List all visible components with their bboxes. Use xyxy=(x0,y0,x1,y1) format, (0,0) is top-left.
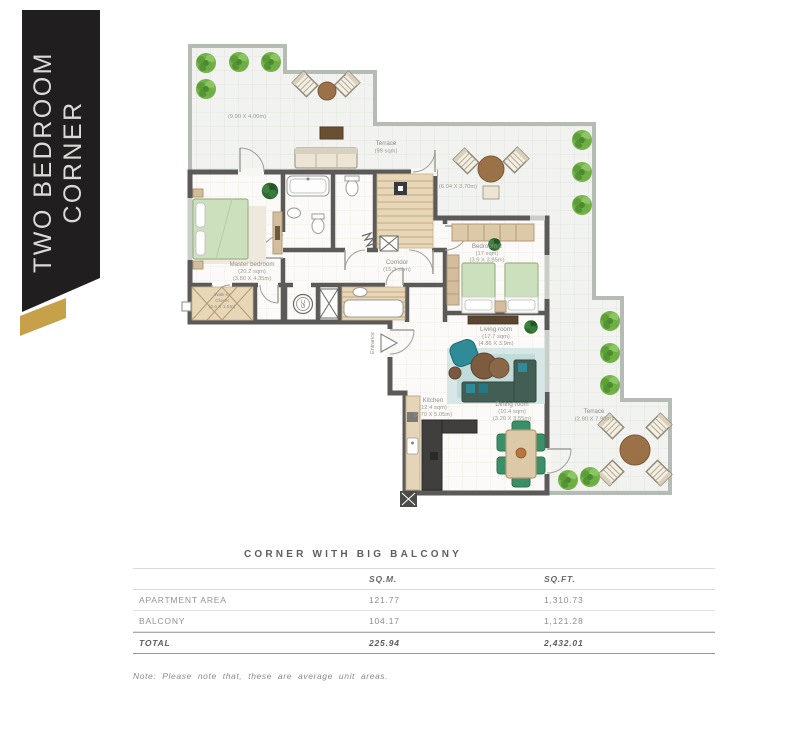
plant-icon xyxy=(524,320,538,334)
kitchen-label: Kitchen xyxy=(423,397,444,404)
gc-label: GC xyxy=(301,300,307,308)
plant-icon xyxy=(572,195,592,215)
header-sqft: SQ.FT. xyxy=(538,569,715,589)
sink xyxy=(288,208,301,218)
window xyxy=(188,198,193,260)
shelf xyxy=(447,255,459,305)
window xyxy=(530,216,545,221)
terrace-bottom-label: Terrace xyxy=(584,408,605,415)
shaft-room xyxy=(320,289,338,318)
dining-label: Dining room xyxy=(495,401,528,408)
master-bedroom-dim: (3.80 X 4.35m) xyxy=(233,276,271,282)
dresser-detail xyxy=(275,226,280,240)
total-sqft: 2,432.01 xyxy=(538,633,715,653)
coffee-table xyxy=(320,127,343,139)
cooktop xyxy=(430,452,438,460)
plant-icon xyxy=(572,162,592,182)
faucet xyxy=(411,442,414,445)
sliding-window xyxy=(545,330,550,392)
terrace-top-dim: (9.90 X 4.00m) xyxy=(228,114,266,120)
ottoman xyxy=(483,186,499,199)
nightstand xyxy=(193,189,203,197)
bedroom2-label: Bedroom 2 xyxy=(472,243,503,250)
plant-icon xyxy=(600,375,620,395)
round-table xyxy=(620,435,650,465)
centerpiece xyxy=(516,448,526,458)
walkin-dim: (2.6 X 1.5m) xyxy=(209,304,236,310)
door-gap xyxy=(238,168,264,176)
side-table xyxy=(449,367,461,379)
plant-icon xyxy=(261,52,281,72)
dining-area: (10.4 sqm) xyxy=(498,409,526,415)
coffee-table xyxy=(489,358,509,378)
plant-icon xyxy=(558,470,578,490)
area-table-section: CORNER WITH BIG BALCONY SQ.M. SQ.FT. APA… xyxy=(133,549,715,681)
floorplan-figure: TWO BEDROOM CORNER xyxy=(0,0,811,545)
banner-line1: TWO BEDROOM xyxy=(29,51,57,273)
terrace-right-dim: (6.04 X 3.70m) xyxy=(439,184,477,190)
corridor-area: (15.3 sqm) xyxy=(383,267,411,273)
bathroom-2 xyxy=(342,287,405,320)
pillow xyxy=(196,203,205,227)
kitchen-area: (12.4 sqm) xyxy=(419,405,447,411)
row-sqft: 1,121.28 xyxy=(538,611,715,631)
corridor-label: Corridor xyxy=(386,259,408,266)
sofa-pillow xyxy=(479,384,488,393)
kitchen-island xyxy=(442,420,477,433)
sofa-pillow xyxy=(518,363,527,372)
row-sqm: 121.77 xyxy=(363,590,538,610)
round-table xyxy=(318,82,336,100)
toilet xyxy=(312,219,324,234)
sliding-window xyxy=(545,255,550,299)
shaft-box-inner xyxy=(398,186,403,191)
walkin-label2: Closet xyxy=(215,298,229,304)
tv-console xyxy=(468,316,518,324)
row-sqft: 1,310.73 xyxy=(538,590,715,610)
toilet-tank xyxy=(345,176,359,181)
kitchen-sink xyxy=(407,438,418,454)
plant-icon xyxy=(572,130,592,150)
nightstand xyxy=(193,261,203,269)
sofa-pillow xyxy=(466,384,475,393)
plant-icon xyxy=(262,183,279,200)
bedroom2-dim: (3.9 X 3.85m) xyxy=(469,258,504,264)
round-table xyxy=(478,156,504,182)
table-row: APARTMENT AREA 121.77 1,310.73 xyxy=(133,590,715,611)
plant-icon xyxy=(196,79,216,99)
plant-icon xyxy=(580,467,600,487)
table-total-row: TOTAL 225.94 2,432.01 xyxy=(133,632,715,654)
sofa-back xyxy=(295,148,357,154)
living-label: Living room xyxy=(480,326,512,333)
row-sqm: 104.17 xyxy=(363,611,538,631)
pillow xyxy=(508,300,535,310)
header-blank xyxy=(133,574,363,584)
nightstand xyxy=(495,301,506,312)
master-bedroom-label: Master bedroom xyxy=(229,261,274,268)
banner-line2: CORNER xyxy=(59,100,87,223)
plant-icon xyxy=(196,53,216,73)
table-note: Note: Please note that, these are averag… xyxy=(133,671,715,681)
toilet xyxy=(346,180,358,196)
table-header-row: SQ.M. SQ.FT. xyxy=(133,568,715,590)
wc-room xyxy=(345,176,359,196)
total-sqm: 225.94 xyxy=(363,633,538,653)
title-banner: TWO BEDROOM CORNER xyxy=(20,10,100,336)
faucet xyxy=(307,178,310,181)
walkin-label: Walk-in xyxy=(214,292,230,298)
sink xyxy=(353,288,367,297)
bedroom2-area: (17 sqm) xyxy=(476,251,499,257)
bathtub xyxy=(344,300,403,317)
terrace-top-label: Terrace xyxy=(376,140,397,147)
pillow xyxy=(196,231,205,255)
terrace-bottom-dim: (2.90 X 7.90m) xyxy=(575,417,613,423)
row-label: BALCONY xyxy=(133,611,363,631)
terrace-top-area: (99 sqm) xyxy=(375,149,398,155)
living-dim: (4.86 X 3.9m) xyxy=(478,341,513,347)
header-sqm: SQ.M. xyxy=(363,569,538,589)
master-bedroom-area: (20.2 sqm) xyxy=(238,269,266,275)
gc-room: GC xyxy=(294,295,313,314)
dining-dim: (3.20 X 3.55m) xyxy=(493,416,531,422)
plant-icon xyxy=(600,343,620,363)
total-label: TOTAL xyxy=(133,633,363,653)
small-box xyxy=(182,302,191,311)
toilet-tank xyxy=(312,214,324,219)
kitchen-dim: (2.70 X 5.05m) xyxy=(414,412,452,418)
pillow xyxy=(465,300,492,310)
table-row: BALCONY 104.17 1,121.28 xyxy=(133,611,715,632)
living-area: (17.7 sqm) xyxy=(482,334,510,340)
row-label: APARTMENT AREA xyxy=(133,590,363,610)
table-title: CORNER WITH BIG BALCONY xyxy=(133,549,573,560)
walkin-closet: Walk-in Closet (2.6 X 1.5m) xyxy=(192,287,253,320)
entrance-label: Entrance xyxy=(370,332,376,354)
plant-icon xyxy=(600,311,620,331)
plant-icon xyxy=(229,52,249,72)
area-table: SQ.M. SQ.FT. APARTMENT AREA 121.77 1,310… xyxy=(133,568,715,654)
